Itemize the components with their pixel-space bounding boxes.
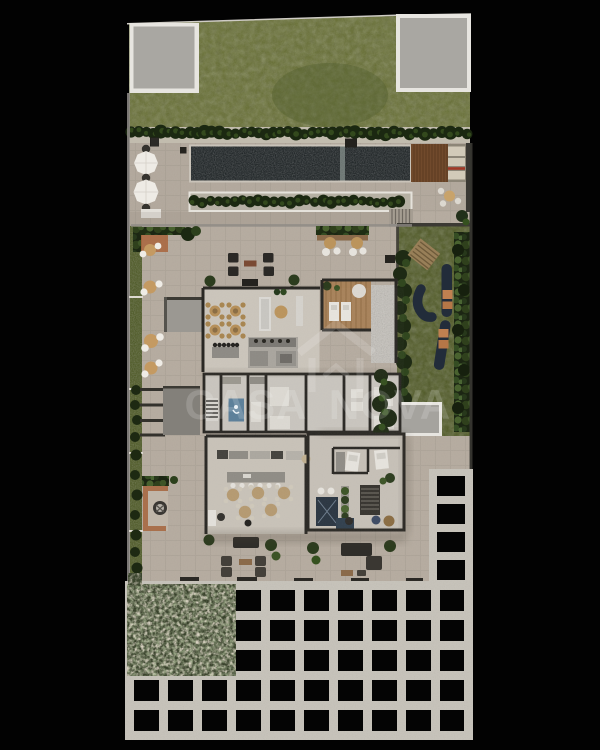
svg-text:CASA: CASA — [184, 381, 307, 428]
svg-text:NOVA: NOVA — [329, 381, 451, 428]
